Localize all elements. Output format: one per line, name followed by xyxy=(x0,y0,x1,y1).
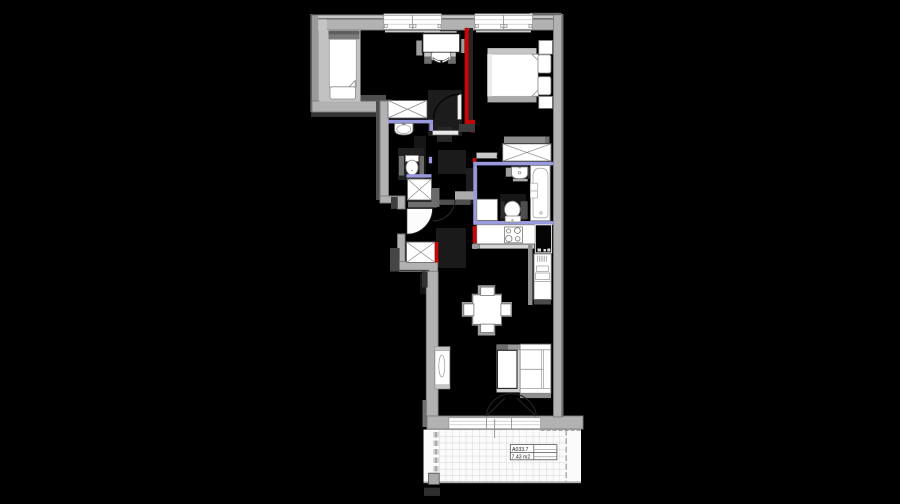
svg-text:A033.7: A033.7 xyxy=(512,447,529,453)
svg-text:7.43 m2: 7.43 m2 xyxy=(512,454,531,460)
